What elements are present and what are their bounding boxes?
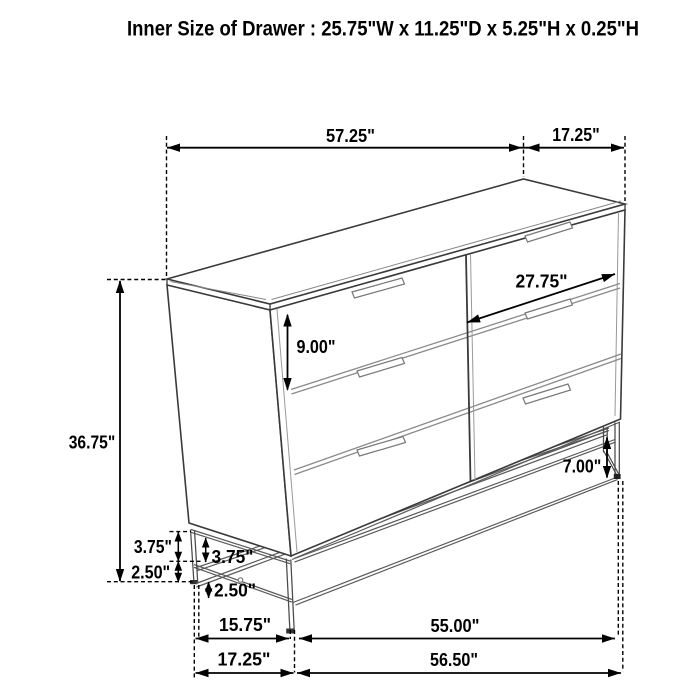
- svg-text:3.75": 3.75": [134, 536, 172, 557]
- svg-text:56.50": 56.50": [430, 649, 478, 670]
- svg-text:9.00": 9.00": [297, 336, 336, 357]
- svg-text:17.25": 17.25": [552, 124, 600, 145]
- svg-text:2.50": 2.50": [214, 580, 256, 601]
- svg-text:3.75": 3.75": [212, 546, 254, 567]
- svg-text:2.50": 2.50": [131, 562, 170, 583]
- svg-text:15.75": 15.75": [219, 614, 271, 635]
- svg-text:7.00": 7.00": [563, 456, 602, 477]
- svg-text:27.75": 27.75": [516, 271, 568, 292]
- svg-text:57.25": 57.25": [326, 125, 375, 146]
- svg-text:17.25": 17.25": [218, 649, 271, 670]
- svg-text:Inner Size of Drawer : 25.75"W: Inner Size of Drawer : 25.75"W x 11.25"D…: [127, 18, 639, 41]
- svg-text:55.00": 55.00": [431, 615, 480, 636]
- svg-text:36.75": 36.75": [69, 432, 116, 453]
